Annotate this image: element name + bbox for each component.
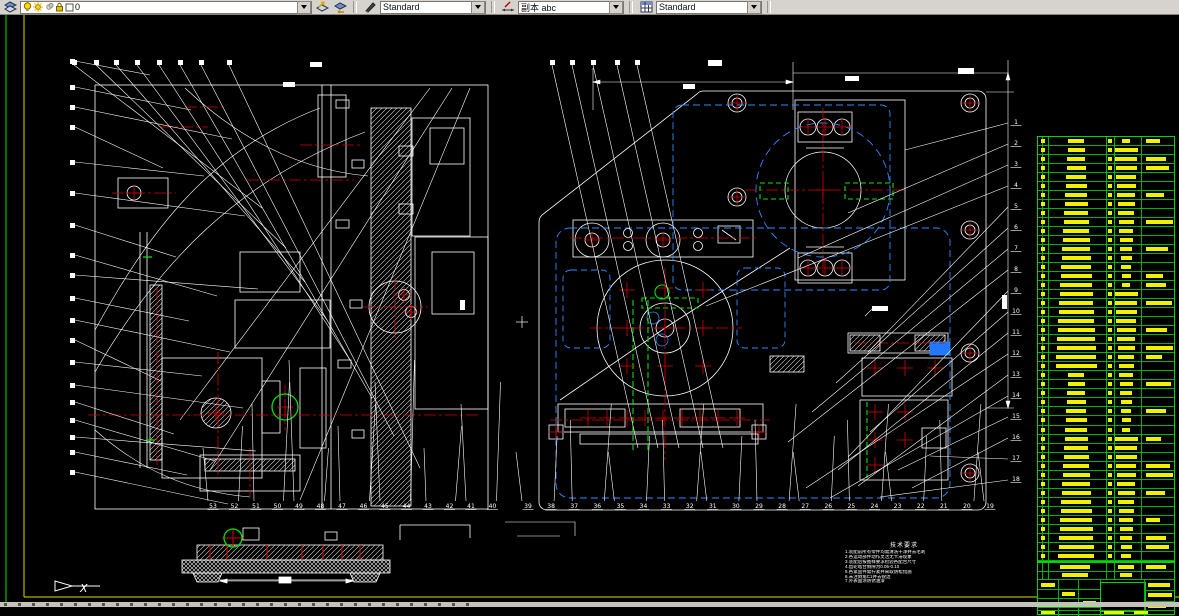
- parts-table-row: [1038, 444, 1174, 453]
- parts-table-row: [1038, 489, 1174, 498]
- ucs-x-label: X: [79, 582, 88, 595]
- parts-list-table: [1037, 136, 1175, 562]
- parts-table-row: [1038, 371, 1174, 380]
- dimension-icon: [501, 1, 515, 13]
- parts-table-row: [1038, 525, 1174, 534]
- sun-icon[interactable]: [33, 2, 43, 12]
- right-view: [516, 60, 1014, 510]
- svg-text:24: 24: [871, 503, 879, 510]
- dim-style-control[interactable]: 副本 abc: [518, 1, 624, 14]
- svg-text:28: 28: [778, 503, 786, 510]
- parts-table-row: [1038, 344, 1174, 353]
- parts-table-row: [1038, 245, 1174, 254]
- pen-nib-icon: [364, 1, 377, 13]
- lightbulb-icon[interactable]: [23, 2, 32, 12]
- svg-text:45: 45: [381, 503, 389, 510]
- chevron-down-icon: [613, 5, 619, 9]
- parts-table-row: [1038, 389, 1174, 398]
- svg-text:29: 29: [755, 503, 763, 510]
- parts-table-row: [1038, 308, 1174, 317]
- dim-style-button[interactable]: [500, 1, 516, 14]
- svg-text:32: 32: [686, 503, 694, 510]
- toolbar-separator: [353, 1, 357, 13]
- parts-table-row: [1038, 227, 1174, 236]
- layer-properties-button[interactable]: [2, 1, 18, 14]
- toolbar: 0 Standard 副本 abc: [0, 0, 1179, 15]
- svg-text:47: 47: [338, 503, 346, 510]
- parts-table-row: [1038, 435, 1174, 444]
- svg-text:36: 36: [593, 503, 601, 510]
- chevron-down-icon: [475, 5, 481, 9]
- svg-text:20: 20: [963, 503, 971, 510]
- text-style-value: Standard: [383, 2, 469, 12]
- svg-text:38: 38: [547, 503, 555, 510]
- svg-text:49: 49: [295, 503, 303, 510]
- table-style-control[interactable]: Standard: [656, 1, 762, 14]
- parts-table-row: [1038, 471, 1174, 480]
- parts-table-row: [1038, 498, 1174, 507]
- table-icon: [640, 1, 653, 13]
- svg-text:53: 53: [209, 503, 217, 510]
- parts-table-row: [1038, 317, 1174, 326]
- svg-text:34: 34: [640, 503, 648, 510]
- command-line-strip[interactable]: [0, 602, 1179, 607]
- parts-table-row: [1038, 254, 1174, 263]
- parts-table-row: [1038, 552, 1174, 561]
- parts-table-row: [1038, 299, 1174, 308]
- parts-table-row: [1038, 362, 1174, 371]
- current-layer-name: 0: [75, 2, 295, 12]
- parts-table-row: [1038, 416, 1174, 425]
- svg-text:22: 22: [917, 503, 925, 510]
- technical-notes: 技术要求 1.装配前所有零件均需清洗干净并去毛刺2.各运动部件动作灵活无卡滞现象…: [845, 543, 963, 584]
- right-view-centerlines: [550, 108, 945, 460]
- svg-text:27: 27: [801, 503, 809, 510]
- svg-text:2: 2: [1014, 140, 1018, 147]
- dim-style-value: 副本 abc: [521, 1, 607, 14]
- text-style-control[interactable]: Standard: [380, 1, 486, 14]
- svg-text:8: 8: [1014, 266, 1018, 273]
- drawing-canvas[interactable]: 1234567891011121314151617183938373635343…: [0, 15, 1179, 602]
- layer-previous-icon: [334, 1, 347, 13]
- svg-text:21: 21: [940, 503, 948, 510]
- parts-table-row: [1038, 480, 1174, 489]
- svg-text:3: 3: [1014, 161, 1018, 168]
- parts-table-row: [1038, 182, 1174, 191]
- parts-table-row: [1038, 191, 1174, 200]
- parts-table-row: [1038, 236, 1174, 245]
- svg-text:14: 14: [1012, 392, 1020, 399]
- parts-table-row: [1038, 290, 1174, 299]
- parts-table-row: [1038, 137, 1174, 146]
- chevron-down-icon: [301, 5, 307, 9]
- svg-text:18: 18: [1012, 476, 1020, 483]
- parts-table-row: [1038, 173, 1174, 182]
- make-object-layer-current-button[interactable]: [314, 1, 330, 14]
- parts-table-row: [1038, 335, 1174, 344]
- leader-lines-and-balloons: 1234567891011121314151617183938373635343…: [70, 59, 1022, 546]
- layer-dropdown-arrow[interactable]: [297, 1, 311, 14]
- parts-table-row: [1038, 272, 1174, 281]
- text-style-dropdown-arrow[interactable]: [471, 1, 485, 14]
- svg-text:13: 13: [1012, 371, 1020, 378]
- svg-text:16: 16: [1012, 434, 1020, 441]
- layer-previous-button[interactable]: [332, 1, 348, 14]
- parts-table-row: [1038, 398, 1174, 407]
- assembly-drawing: 1234567891011121314151617183938373635343…: [0, 15, 1179, 602]
- bolt-circles: [549, 94, 979, 482]
- svg-text:43: 43: [424, 503, 432, 510]
- base-section-view: [182, 522, 575, 583]
- svg-text:15: 15: [1012, 413, 1020, 420]
- svg-text:30: 30: [732, 503, 740, 510]
- svg-text:11: 11: [1012, 329, 1020, 336]
- parts-table-row: [1038, 200, 1174, 209]
- svg-text:19: 19: [986, 503, 994, 510]
- toolbar-separator: [767, 1, 771, 13]
- svg-text:37: 37: [570, 503, 578, 510]
- parts-table-row: [1038, 218, 1174, 227]
- svg-text:35: 35: [617, 503, 625, 510]
- left-view: [95, 85, 488, 509]
- freeze-sun-icon[interactable]: [44, 2, 54, 12]
- notes-title: 技术要求: [845, 543, 963, 550]
- svg-text:50: 50: [274, 503, 282, 510]
- svg-text:1: 1: [1014, 119, 1018, 126]
- svg-text:46: 46: [360, 503, 368, 510]
- parts-table-row: [1038, 263, 1174, 272]
- title-block: [1037, 562, 1175, 615]
- svg-text:44: 44: [403, 503, 411, 510]
- command-text-marks: [4, 603, 474, 606]
- svg-text:10: 10: [1012, 308, 1020, 315]
- ucs-icon: X: [55, 581, 100, 595]
- parts-table-row: [1038, 209, 1174, 218]
- parts-table-row: [1038, 543, 1174, 552]
- svg-text:6: 6: [1014, 224, 1018, 231]
- text-style-button[interactable]: [362, 1, 378, 14]
- layer-control[interactable]: 0: [20, 1, 312, 14]
- svg-text:23: 23: [894, 503, 902, 510]
- layers-stack-icon: [4, 1, 17, 13]
- svg-text:25: 25: [848, 503, 856, 510]
- chevron-down-icon: [751, 5, 757, 9]
- svg-text:39: 39: [524, 503, 532, 510]
- parts-table-row: [1038, 281, 1174, 290]
- parts-table-row: [1038, 534, 1174, 543]
- svg-text:31: 31: [709, 503, 717, 510]
- svg-text:40: 40: [489, 503, 497, 510]
- parts-table-row: [1038, 426, 1174, 435]
- parts-table-row: [1038, 516, 1174, 525]
- layer-current-icon: [316, 1, 329, 13]
- svg-text:7: 7: [1014, 245, 1018, 252]
- svg-text:48: 48: [317, 503, 325, 510]
- table-style-value: Standard: [659, 2, 745, 12]
- parts-table-row: [1038, 380, 1174, 389]
- parts-table-row: [1038, 164, 1174, 173]
- svg-text:26: 26: [824, 503, 832, 510]
- toolbar-separator: [629, 1, 633, 13]
- svg-text:41: 41: [467, 503, 475, 510]
- parts-table-row: [1038, 353, 1174, 362]
- parts-table-row: [1038, 146, 1174, 155]
- lock-icon[interactable]: [55, 2, 64, 12]
- svg-text:12: 12: [1012, 350, 1020, 357]
- color-swatch-icon[interactable]: [65, 3, 74, 12]
- svg-text:4: 4: [1014, 182, 1018, 189]
- svg-text:33: 33: [663, 503, 671, 510]
- svg-text:52: 52: [231, 503, 239, 510]
- parts-table-row: [1038, 407, 1174, 416]
- svg-text:5: 5: [1014, 203, 1018, 210]
- parts-table-row: [1038, 326, 1174, 335]
- svg-text:51: 51: [252, 503, 260, 510]
- parts-table-row: [1038, 507, 1174, 516]
- dim-style-dropdown-arrow[interactable]: [609, 1, 623, 14]
- parts-table-row: [1038, 462, 1174, 471]
- parts-table-row: [1038, 453, 1174, 462]
- table-style-button[interactable]: [638, 1, 654, 14]
- svg-text:17: 17: [1012, 455, 1020, 462]
- svg-text:9: 9: [1014, 287, 1018, 294]
- table-style-dropdown-arrow[interactable]: [747, 1, 761, 14]
- note-line: 7.外表面涂防锈油漆: [845, 579, 963, 584]
- svg-text:42: 42: [446, 503, 454, 510]
- toolbar-separator: [491, 1, 495, 13]
- parts-table-row: [1038, 155, 1174, 164]
